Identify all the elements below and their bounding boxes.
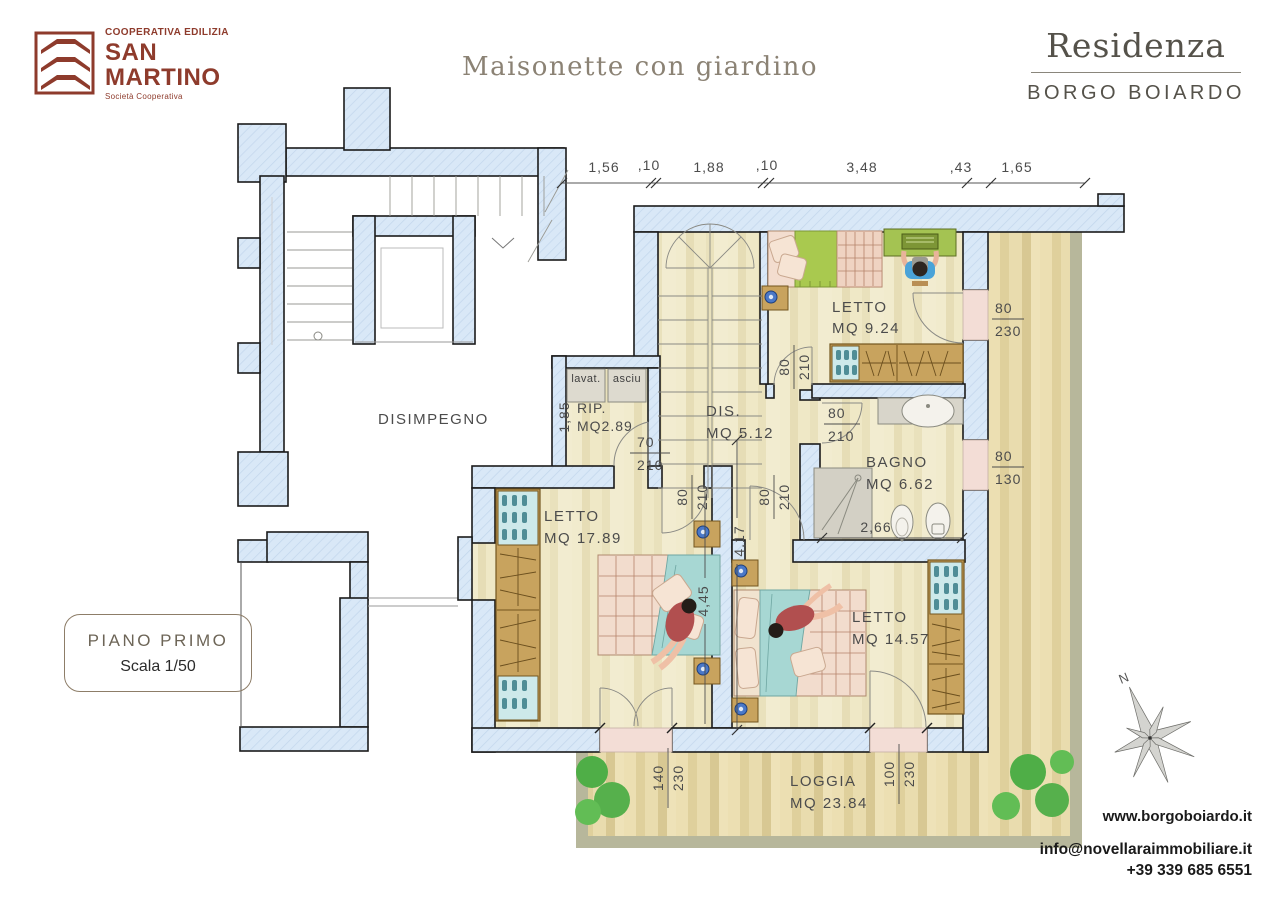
svg-text:4,17: 4,17 [731, 525, 747, 556]
room-area-bagno: MQ 6.62 [866, 476, 934, 493]
elevator-cab [381, 248, 443, 328]
desk [884, 229, 956, 256]
dim-value: ,10 [756, 157, 778, 173]
svg-text:230: 230 [901, 761, 917, 787]
dim-rip-depth: 1,85 [556, 401, 572, 432]
room-area-letto2: MQ 17.89 [544, 530, 622, 547]
svg-text:130: 130 [995, 471, 1021, 487]
washer-label: lavat. [571, 373, 600, 385]
dim-value: 1,56 [588, 159, 619, 175]
svg-text:230: 230 [670, 765, 686, 791]
svg-text:80: 80 [828, 405, 846, 421]
floorplan-drawing: lavat. asciu [0, 0, 1280, 905]
svg-text:210: 210 [828, 428, 854, 444]
svg-text:210: 210 [637, 457, 663, 473]
svg-text:230: 230 [995, 323, 1021, 339]
floorplan-page: lavat. asciu [0, 0, 1280, 905]
room-label-letto3: LETTO [852, 609, 908, 626]
single-bed [768, 231, 882, 287]
dim-value: ,10 [638, 157, 660, 173]
svg-text:210: 210 [796, 354, 812, 380]
room-label-letto1: LETTO [832, 299, 888, 316]
svg-text:210: 210 [776, 484, 792, 510]
logo-line4: Società Cooperativa [105, 93, 229, 101]
svg-text:1,85: 1,85 [556, 401, 572, 432]
dim-value: 1,65 [1001, 159, 1032, 175]
page-title: Maisonette con giardino [462, 52, 818, 82]
dryer-label: asciu [613, 373, 641, 385]
room-area-letto3: MQ 14.57 [852, 631, 930, 648]
room-label-bagno: BAGNO [866, 454, 928, 471]
floor-name: PIANO PRIMO [88, 631, 229, 651]
toilet [926, 503, 950, 539]
floor-scale: Scala 1/50 [120, 658, 196, 676]
room-label-loggia: LOGGIA [790, 773, 857, 790]
svg-text:2,66: 2,66 [860, 519, 891, 535]
dim-value: 3,48 [846, 159, 877, 175]
room-label-disimpegno: DISIMPEGNO [378, 411, 489, 428]
room-label-rip: RIP. [577, 400, 606, 416]
svg-text:80: 80 [756, 488, 772, 506]
room-area-rip: MQ2.89 [577, 418, 633, 434]
website-link[interactable]: www.borgoboiardo.it [1040, 808, 1252, 825]
svg-text:80: 80 [995, 300, 1013, 316]
san-martino-logo: COOPERATIVA EDILIZIA SAN MARTINO Società… [34, 28, 229, 101]
svg-text:80: 80 [674, 488, 690, 506]
compass-north-label: N [1116, 669, 1130, 686]
stair-column [314, 332, 322, 340]
room-label-dis: DIS. [706, 403, 741, 420]
svg-text:210: 210 [694, 484, 710, 510]
logo-line3: MARTINO [105, 66, 229, 90]
email-link[interactable]: info@novellaraimmobiliare.it [1040, 841, 1252, 859]
room-area-dis: MQ 5.12 [706, 425, 774, 442]
brand-divider [1031, 72, 1241, 73]
dim-value: ,43 [950, 159, 972, 175]
brand-location: BORGO BOIARDO [1022, 82, 1250, 105]
brand-name: Residenza [1022, 26, 1250, 65]
svg-text:70: 70 [637, 434, 655, 450]
svg-text:80: 80 [776, 358, 792, 376]
pillow [735, 597, 760, 639]
residence-brand: Residenza BORGO BOIARDO [1022, 26, 1250, 105]
contact-info: www.borgoboiardo.it info@novellaraimmobi… [1040, 808, 1252, 880]
room-label-letto2: LETTO [544, 508, 600, 525]
logo-line1: COOPERATIVA EDILIZIA [105, 28, 229, 38]
pillow [735, 647, 759, 689]
room-area-loggia: MQ 23.84 [790, 795, 868, 812]
room-area-letto1: MQ 9.24 [832, 320, 900, 337]
sink-basin [902, 395, 954, 427]
phone-number: +39 339 685 6551 [1040, 862, 1252, 880]
dimension-line-top: 1,56 ,10 1,88 ,10 3,48 ,43 1,65 [557, 157, 1090, 188]
san-martino-logo-icon [34, 28, 96, 98]
wardrobe [830, 344, 963, 382]
compass-rose: N [1087, 654, 1208, 797]
wardrobe [928, 560, 964, 714]
loggia-bottom-deck [588, 752, 1070, 836]
logo-line2: SAN [105, 41, 229, 65]
svg-text:100: 100 [881, 761, 897, 787]
dim-value: 1,88 [693, 159, 724, 175]
wardrobe [496, 489, 540, 721]
loggia-border-bottom [576, 836, 1082, 848]
svg-text:140: 140 [650, 765, 666, 791]
svg-text:80: 80 [995, 448, 1013, 464]
direction-arrow [492, 238, 514, 248]
stair-treads-left [287, 232, 352, 340]
svg-text:4,45: 4,45 [695, 585, 711, 616]
floor-badge: PIANO PRIMO Scala 1/50 [64, 614, 252, 692]
